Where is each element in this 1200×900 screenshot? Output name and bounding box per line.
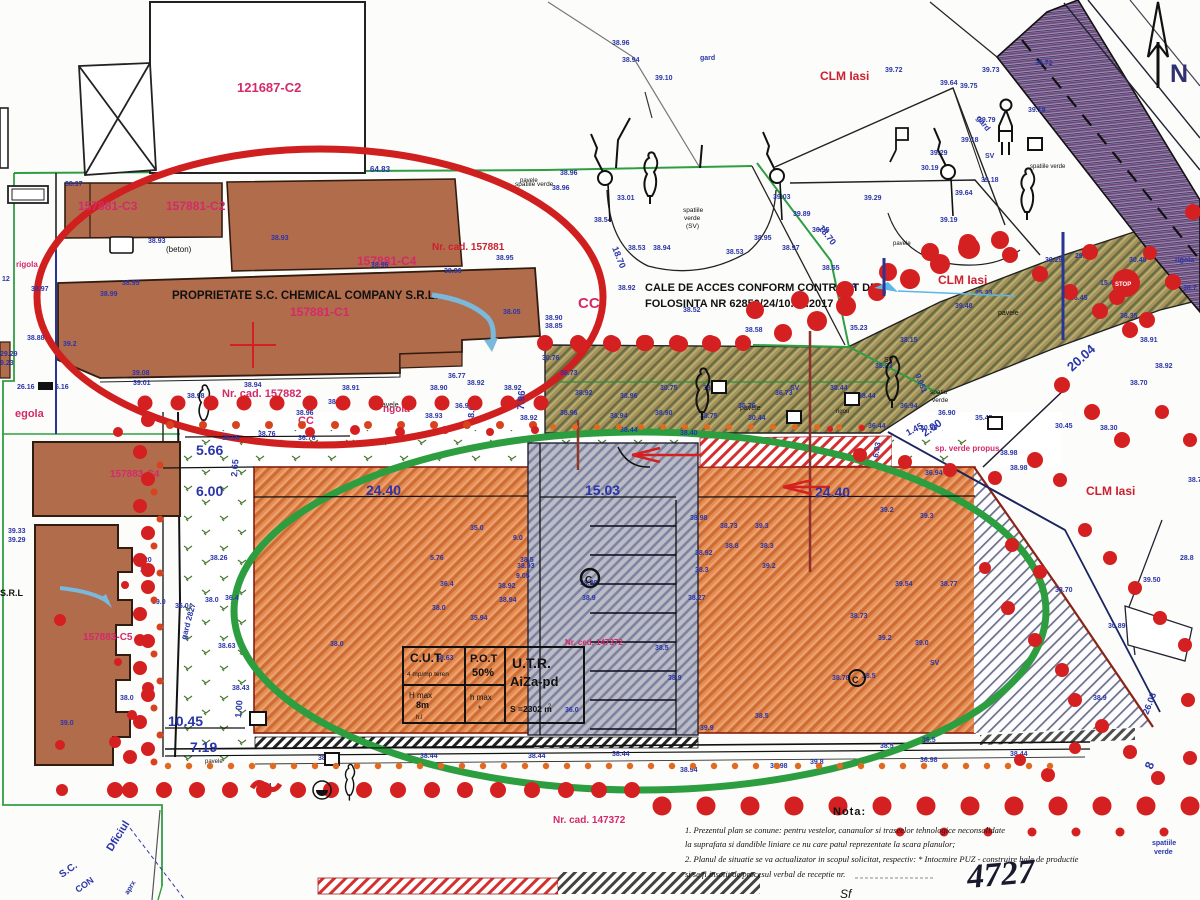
svg-text:39.10: 39.10 bbox=[655, 75, 673, 82]
svg-text:39.0: 39.0 bbox=[915, 640, 929, 647]
svg-text:15.03: 15.03 bbox=[585, 482, 620, 498]
svg-text:38.96: 38.96 bbox=[222, 435, 240, 442]
svg-text:Sf: Sf bbox=[840, 887, 853, 900]
svg-text:39.3: 39.3 bbox=[755, 523, 769, 530]
svg-text:CLM Iasi: CLM Iasi bbox=[820, 69, 869, 83]
svg-text:24.40: 24.40 bbox=[366, 482, 401, 498]
svg-text:S.R.L: S.R.L bbox=[0, 588, 24, 598]
svg-text:6.16: 6.16 bbox=[55, 384, 69, 391]
svg-text:38.3: 38.3 bbox=[695, 567, 709, 574]
svg-text:la suprafata si dandible linia: la suprafata si dandible liniare ce nu c… bbox=[685, 839, 955, 849]
svg-text:38.92: 38.92 bbox=[467, 380, 485, 387]
svg-text:36.44: 36.44 bbox=[868, 423, 886, 430]
svg-text:39.18: 39.18 bbox=[981, 177, 999, 184]
svg-text:26.16: 26.16 bbox=[17, 384, 35, 391]
svg-text:36.4: 36.4 bbox=[440, 581, 454, 588]
svg-text:(beton): (beton) bbox=[166, 245, 192, 254]
svg-text:30.76: 30.76 bbox=[542, 355, 560, 362]
svg-text:39.64: 39.64 bbox=[940, 80, 958, 87]
svg-text:38.9: 38.9 bbox=[1093, 695, 1107, 702]
svg-text:38.92: 38.92 bbox=[504, 385, 522, 392]
svg-text:verde: verde bbox=[932, 397, 949, 404]
svg-text:39.08: 39.08 bbox=[132, 370, 150, 377]
svg-text:4 mp/mp teren: 4 mp/mp teren bbox=[407, 671, 449, 678]
svg-text:39.54: 39.54 bbox=[895, 581, 913, 588]
svg-text:36.94: 36.94 bbox=[900, 403, 918, 410]
svg-text:33.01: 33.01 bbox=[617, 195, 635, 202]
svg-text:38.78: 38.78 bbox=[832, 675, 850, 682]
svg-text:38.98: 38.98 bbox=[690, 515, 708, 522]
svg-text:spatiile: spatiile bbox=[683, 207, 704, 214]
svg-text:38.44: 38.44 bbox=[858, 393, 876, 400]
svg-text:39.75: 39.75 bbox=[960, 83, 978, 90]
svg-text:38.55: 38.55 bbox=[822, 265, 840, 272]
svg-text:38.99: 38.99 bbox=[100, 291, 118, 298]
svg-text:SV: SV bbox=[930, 660, 940, 667]
svg-text:38.93: 38.93 bbox=[517, 563, 535, 570]
svg-text:39.29: 39.29 bbox=[1045, 257, 1063, 264]
svg-text:38.88: 38.88 bbox=[27, 335, 45, 342]
svg-text:gard: gard bbox=[700, 55, 715, 62]
svg-text:38.94: 38.94 bbox=[610, 413, 628, 420]
svg-text:38.15: 38.15 bbox=[900, 337, 918, 344]
svg-text:38.77: 38.77 bbox=[940, 581, 958, 588]
svg-text:h max: h max bbox=[470, 693, 492, 702]
svg-text:30.75: 30.75 bbox=[660, 385, 678, 392]
svg-text:39.89: 39.89 bbox=[793, 211, 811, 218]
svg-text:38.90: 38.90 bbox=[430, 385, 448, 392]
svg-text:si se fi insotit de procesul v: si se fi insotit de procesul verbal de r… bbox=[685, 869, 845, 879]
svg-text:egola: egola bbox=[15, 408, 45, 420]
svg-text:36.76: 36.76 bbox=[298, 435, 316, 442]
svg-text:STOP: STOP bbox=[1115, 282, 1131, 288]
svg-text:38.7: 38.7 bbox=[1188, 477, 1200, 484]
svg-text:38.54: 38.54 bbox=[594, 217, 612, 224]
svg-text:verde: verde bbox=[1154, 849, 1173, 856]
svg-text:38.96: 38.96 bbox=[296, 410, 314, 417]
svg-text:38.94: 38.94 bbox=[244, 382, 262, 389]
svg-text:39.9: 39.9 bbox=[700, 725, 714, 732]
svg-text:38.97: 38.97 bbox=[31, 286, 49, 293]
svg-text:38.95: 38.95 bbox=[496, 255, 514, 262]
svg-text:35.76: 35.76 bbox=[738, 403, 756, 410]
svg-text:30.90: 30.90 bbox=[920, 425, 938, 432]
svg-text:Nr. cad. 157881: Nr. cad. 157881 bbox=[432, 242, 505, 253]
svg-text:7.19: 7.19 bbox=[190, 739, 217, 755]
svg-text:39.33: 39.33 bbox=[8, 528, 26, 535]
svg-text:CC: CC bbox=[578, 295, 600, 312]
svg-text:38.98: 38.98 bbox=[187, 393, 205, 400]
svg-text:10.45: 10.45 bbox=[168, 713, 203, 729]
svg-text:38.52: 38.52 bbox=[683, 307, 701, 314]
svg-text:38.96: 38.96 bbox=[560, 410, 578, 417]
svg-text:38.44: 38.44 bbox=[420, 753, 438, 760]
svg-text:38.96: 38.96 bbox=[444, 268, 462, 275]
svg-text:39.2: 39.2 bbox=[762, 563, 776, 570]
svg-text:38.92: 38.92 bbox=[520, 415, 538, 422]
svg-text:35.23: 35.23 bbox=[850, 325, 868, 332]
svg-text:38.98: 38.98 bbox=[1000, 450, 1018, 457]
svg-text:38.40: 38.40 bbox=[680, 430, 698, 437]
svg-text:38.05: 38.05 bbox=[503, 309, 521, 316]
svg-text:36.4: 36.4 bbox=[225, 595, 239, 602]
svg-text:38.92: 38.92 bbox=[498, 583, 516, 590]
svg-text:157881-C2: 157881-C2 bbox=[166, 199, 226, 213]
svg-text:38.96: 38.96 bbox=[612, 40, 630, 47]
svg-text:spatiile verde: spatiile verde bbox=[1030, 164, 1066, 170]
svg-text:38.92: 38.92 bbox=[575, 390, 593, 397]
svg-text:39.01: 39.01 bbox=[133, 380, 151, 387]
svg-text:39.64: 39.64 bbox=[955, 190, 973, 197]
svg-text:AiZa-pd: AiZa-pd bbox=[510, 674, 558, 689]
svg-text:30.45: 30.45 bbox=[1055, 423, 1073, 430]
svg-text:38.9: 38.9 bbox=[582, 595, 596, 602]
svg-text:Nr. cad. 147372: Nr. cad. 147372 bbox=[553, 815, 626, 826]
svg-text:verde: verde bbox=[684, 215, 701, 222]
svg-text:38.93: 38.93 bbox=[148, 238, 166, 245]
svg-text:38.63: 38.63 bbox=[218, 643, 236, 650]
svg-text:CLM Iasi: CLM Iasi bbox=[1086, 484, 1135, 498]
svg-text:5.66: 5.66 bbox=[196, 442, 223, 458]
svg-text:38.94: 38.94 bbox=[653, 245, 671, 252]
svg-text:39.48: 39.48 bbox=[955, 303, 973, 310]
svg-text:8m: 8m bbox=[416, 700, 429, 710]
svg-text:38.44: 38.44 bbox=[830, 385, 848, 392]
svg-text:38.70: 38.70 bbox=[1130, 380, 1148, 387]
svg-text:38.96: 38.96 bbox=[560, 170, 578, 177]
svg-text:CLM Iasi: CLM Iasi bbox=[938, 273, 987, 287]
svg-text:157881-C1: 157881-C1 bbox=[290, 305, 350, 319]
svg-text:30.19: 30.19 bbox=[921, 165, 939, 172]
svg-text:N: N bbox=[1170, 60, 1188, 88]
svg-text:38.76: 38.76 bbox=[258, 431, 276, 438]
svg-text:12: 12 bbox=[2, 276, 10, 283]
svg-text:38.91: 38.91 bbox=[342, 385, 360, 392]
svg-text:38.90: 38.90 bbox=[545, 315, 563, 322]
svg-text:38.26: 38.26 bbox=[210, 555, 228, 562]
svg-text:24.40: 24.40 bbox=[815, 484, 850, 500]
svg-text:38.90: 38.90 bbox=[655, 410, 673, 417]
svg-text:*: * bbox=[478, 704, 482, 714]
svg-text:38.3: 38.3 bbox=[760, 543, 774, 550]
svg-text:36.94: 36.94 bbox=[925, 470, 943, 477]
svg-text:38.35: 38.35 bbox=[1120, 313, 1138, 320]
svg-text:9.05: 9.05 bbox=[516, 573, 530, 580]
svg-text:28.8: 28.8 bbox=[1180, 555, 1194, 562]
svg-text:38.92: 38.92 bbox=[1155, 363, 1173, 370]
svg-text:PROPRIETATE S.C. CHEMICAL COMP: PROPRIETATE S.C. CHEMICAL COMPANY S.R.L. bbox=[172, 290, 438, 302]
svg-text:50%: 50% bbox=[472, 667, 494, 679]
svg-text:38.73: 38.73 bbox=[850, 613, 868, 620]
svg-text:38.44: 38.44 bbox=[528, 753, 546, 760]
svg-text:38.97: 38.97 bbox=[65, 181, 83, 188]
svg-text:38.7: 38.7 bbox=[1183, 285, 1197, 292]
svg-text:38.8: 38.8 bbox=[725, 543, 739, 550]
svg-text:Nr. cad. 157882: Nr. cad. 157882 bbox=[222, 388, 302, 400]
svg-text:h.l: h.l bbox=[416, 715, 422, 721]
svg-text:9.0: 9.0 bbox=[513, 535, 523, 542]
svg-text:157883-C5: 157883-C5 bbox=[83, 632, 133, 643]
svg-text:38.70: 38.70 bbox=[1055, 587, 1073, 594]
svg-text:39.3: 39.3 bbox=[920, 513, 934, 520]
svg-text:39.29: 39.29 bbox=[8, 537, 26, 544]
svg-text:38.53: 38.53 bbox=[726, 249, 744, 256]
svg-text:38.96: 38.96 bbox=[620, 393, 638, 400]
svg-text:36.73: 36.73 bbox=[560, 370, 578, 377]
svg-text:38.5: 38.5 bbox=[755, 713, 769, 720]
svg-text:38.94: 38.94 bbox=[622, 57, 640, 64]
svg-text:39.2: 39.2 bbox=[878, 635, 892, 642]
svg-text:121687-C2: 121687-C2 bbox=[237, 80, 301, 95]
svg-text:38.0: 38.0 bbox=[205, 597, 219, 604]
svg-text:4727: 4727 bbox=[964, 853, 1038, 896]
svg-text:38.0: 38.0 bbox=[120, 695, 134, 702]
svg-text:30.89: 30.89 bbox=[1108, 623, 1126, 630]
svg-text:C: C bbox=[852, 675, 859, 685]
svg-text:38.92: 38.92 bbox=[695, 550, 713, 557]
svg-text:rigola: rigola bbox=[1175, 257, 1194, 264]
svg-text:5.76: 5.76 bbox=[430, 555, 444, 562]
svg-text:38.44: 38.44 bbox=[612, 751, 630, 758]
svg-text:64.83: 64.83 bbox=[370, 165, 391, 174]
svg-text:2.65: 2.65 bbox=[229, 459, 240, 477]
svg-text:38.91: 38.91 bbox=[1140, 337, 1158, 344]
svg-text:39.18: 39.18 bbox=[961, 137, 979, 144]
svg-text:38.0: 38.0 bbox=[330, 641, 344, 648]
svg-text:157881-C3: 157881-C3 bbox=[78, 199, 138, 213]
svg-text:38.73: 38.73 bbox=[720, 523, 738, 530]
svg-text:pavele: pavele bbox=[893, 241, 911, 247]
svg-text:30.48: 30.48 bbox=[1129, 257, 1147, 264]
svg-text:36.0: 36.0 bbox=[175, 603, 189, 610]
svg-text:39.72: 39.72 bbox=[1035, 60, 1053, 67]
svg-text:38.96: 38.96 bbox=[371, 262, 389, 269]
svg-text:39.72: 39.72 bbox=[885, 67, 903, 74]
svg-text:39.29: 39.29 bbox=[864, 195, 882, 202]
svg-text:36.5: 36.5 bbox=[922, 737, 936, 744]
svg-text:U.T.R.: U.T.R. bbox=[512, 655, 551, 671]
svg-text:39.2: 39.2 bbox=[63, 341, 77, 348]
svg-text:C.U.T.: C.U.T. bbox=[410, 651, 443, 665]
svg-text:P.O.T: P.O.T bbox=[470, 653, 498, 665]
svg-text:38.44: 38.44 bbox=[620, 427, 638, 434]
svg-text:38.95: 38.95 bbox=[122, 280, 140, 287]
svg-text:35.0: 35.0 bbox=[470, 525, 484, 532]
svg-text:SV: SV bbox=[985, 153, 995, 160]
svg-text:38.93: 38.93 bbox=[425, 413, 443, 420]
svg-text:38.93: 38.93 bbox=[271, 235, 289, 242]
svg-text:38.97: 38.97 bbox=[782, 245, 800, 252]
svg-text:38.98: 38.98 bbox=[1010, 465, 1028, 472]
svg-text:38.85: 38.85 bbox=[545, 323, 563, 330]
svg-text:spatiu: spatiu bbox=[930, 389, 948, 396]
svg-text:38.9: 38.9 bbox=[668, 675, 682, 682]
svg-text:38.58: 38.58 bbox=[745, 327, 763, 334]
svg-text:38.5: 38.5 bbox=[880, 743, 894, 750]
svg-text:39.2: 39.2 bbox=[880, 507, 894, 514]
svg-text:36.95: 36.95 bbox=[812, 227, 830, 234]
svg-text:Nr. ced. 147372: Nr. ced. 147372 bbox=[565, 638, 623, 647]
svg-text:(SV): (SV) bbox=[686, 223, 699, 230]
svg-text:36.73: 36.73 bbox=[775, 390, 793, 397]
svg-text:39.50: 39.50 bbox=[1143, 577, 1161, 584]
svg-text:38.95: 38.95 bbox=[754, 235, 772, 242]
svg-text:38.27: 38.27 bbox=[688, 595, 706, 602]
svg-text:38.5: 38.5 bbox=[520, 557, 534, 564]
svg-text:spatiile: spatiile bbox=[1152, 840, 1176, 847]
svg-text:36.77: 36.77 bbox=[448, 373, 466, 380]
svg-text:38.43: 38.43 bbox=[232, 685, 250, 692]
svg-text:39.19: 39.19 bbox=[1028, 107, 1046, 114]
svg-text:38.53: 38.53 bbox=[628, 245, 646, 252]
svg-text:38.5: 38.5 bbox=[655, 645, 669, 652]
svg-text:sp. verde propus: sp. verde propus bbox=[935, 444, 1000, 453]
svg-text:38.94: 38.94 bbox=[499, 597, 517, 604]
svg-text:30.44: 30.44 bbox=[748, 415, 766, 422]
svg-text:6.00: 6.00 bbox=[196, 483, 223, 499]
svg-text:rigola: rigola bbox=[16, 260, 38, 269]
svg-text:36.98: 36.98 bbox=[920, 757, 938, 764]
svg-text:36.90: 36.90 bbox=[938, 410, 956, 417]
svg-text:7.96: 7.96 bbox=[516, 390, 528, 410]
svg-text:35.23: 35.23 bbox=[875, 363, 893, 370]
svg-text:pavele: pavele bbox=[998, 310, 1019, 317]
svg-text:H max: H max bbox=[409, 691, 432, 700]
svg-text:39.19: 39.19 bbox=[940, 217, 958, 224]
svg-text:9.23: 9.23 bbox=[0, 360, 14, 367]
svg-text:1. Prezentul plan se conune: p: 1. Prezentul plan se conune: pentru vest… bbox=[685, 825, 1005, 835]
svg-text:39.73: 39.73 bbox=[982, 67, 1000, 74]
svg-text:35.94: 35.94 bbox=[470, 615, 488, 622]
svg-text:39.03: 39.03 bbox=[773, 194, 791, 201]
svg-text:38.96: 38.96 bbox=[552, 185, 570, 192]
svg-text:38.30: 38.30 bbox=[1100, 425, 1118, 432]
svg-text:39.0: 39.0 bbox=[60, 720, 74, 727]
svg-text:38.0: 38.0 bbox=[432, 605, 446, 612]
svg-text:pavele: pavele bbox=[520, 178, 538, 184]
svg-text:29.29: 29.29 bbox=[0, 351, 18, 358]
svg-text:Nota:: Nota: bbox=[833, 806, 866, 818]
svg-text:25.23: 25.23 bbox=[975, 290, 993, 297]
svg-text:rigou: rigou bbox=[836, 409, 849, 415]
svg-text:1.00: 1.00 bbox=[233, 700, 244, 718]
svg-text:38.92: 38.92 bbox=[618, 285, 636, 292]
svg-text:S =2302 m: S =2302 m bbox=[510, 704, 552, 714]
svg-text:39.79: 39.79 bbox=[978, 117, 996, 124]
svg-text:C: C bbox=[585, 575, 592, 586]
